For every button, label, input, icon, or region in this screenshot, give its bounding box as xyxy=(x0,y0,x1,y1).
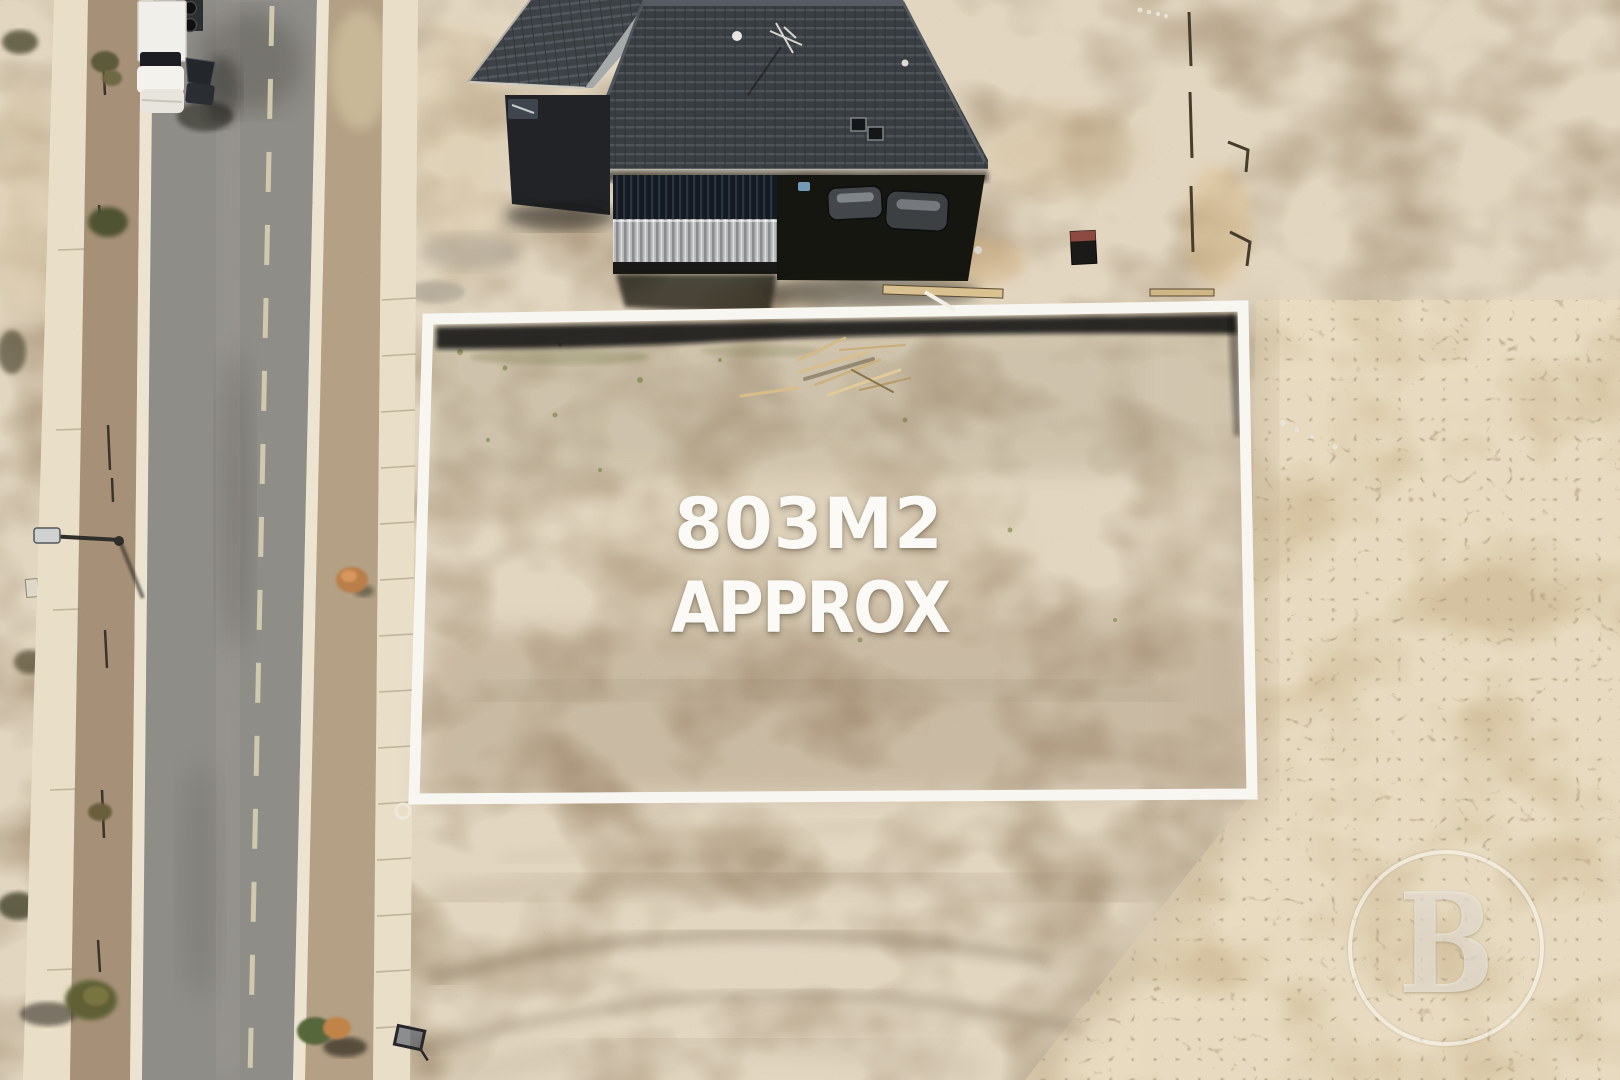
road-corridor xyxy=(20,0,434,1080)
parked-car-2 xyxy=(885,190,949,231)
small-white-object xyxy=(25,579,39,598)
waste-bin xyxy=(1070,230,1097,264)
alfresco-silver-roof xyxy=(613,219,777,263)
aerial-photo: 803M2 APPROX B xyxy=(0,0,1620,1080)
roof-flue xyxy=(851,118,866,131)
alfresco-eave xyxy=(613,262,777,274)
alfresco-dark-roof xyxy=(613,175,777,221)
streetlight-lamp-head xyxy=(34,528,60,543)
parked-car xyxy=(827,186,883,221)
roof-vent xyxy=(732,31,742,41)
photo-scene xyxy=(0,0,1620,1080)
ridge-cap xyxy=(643,0,903,6)
